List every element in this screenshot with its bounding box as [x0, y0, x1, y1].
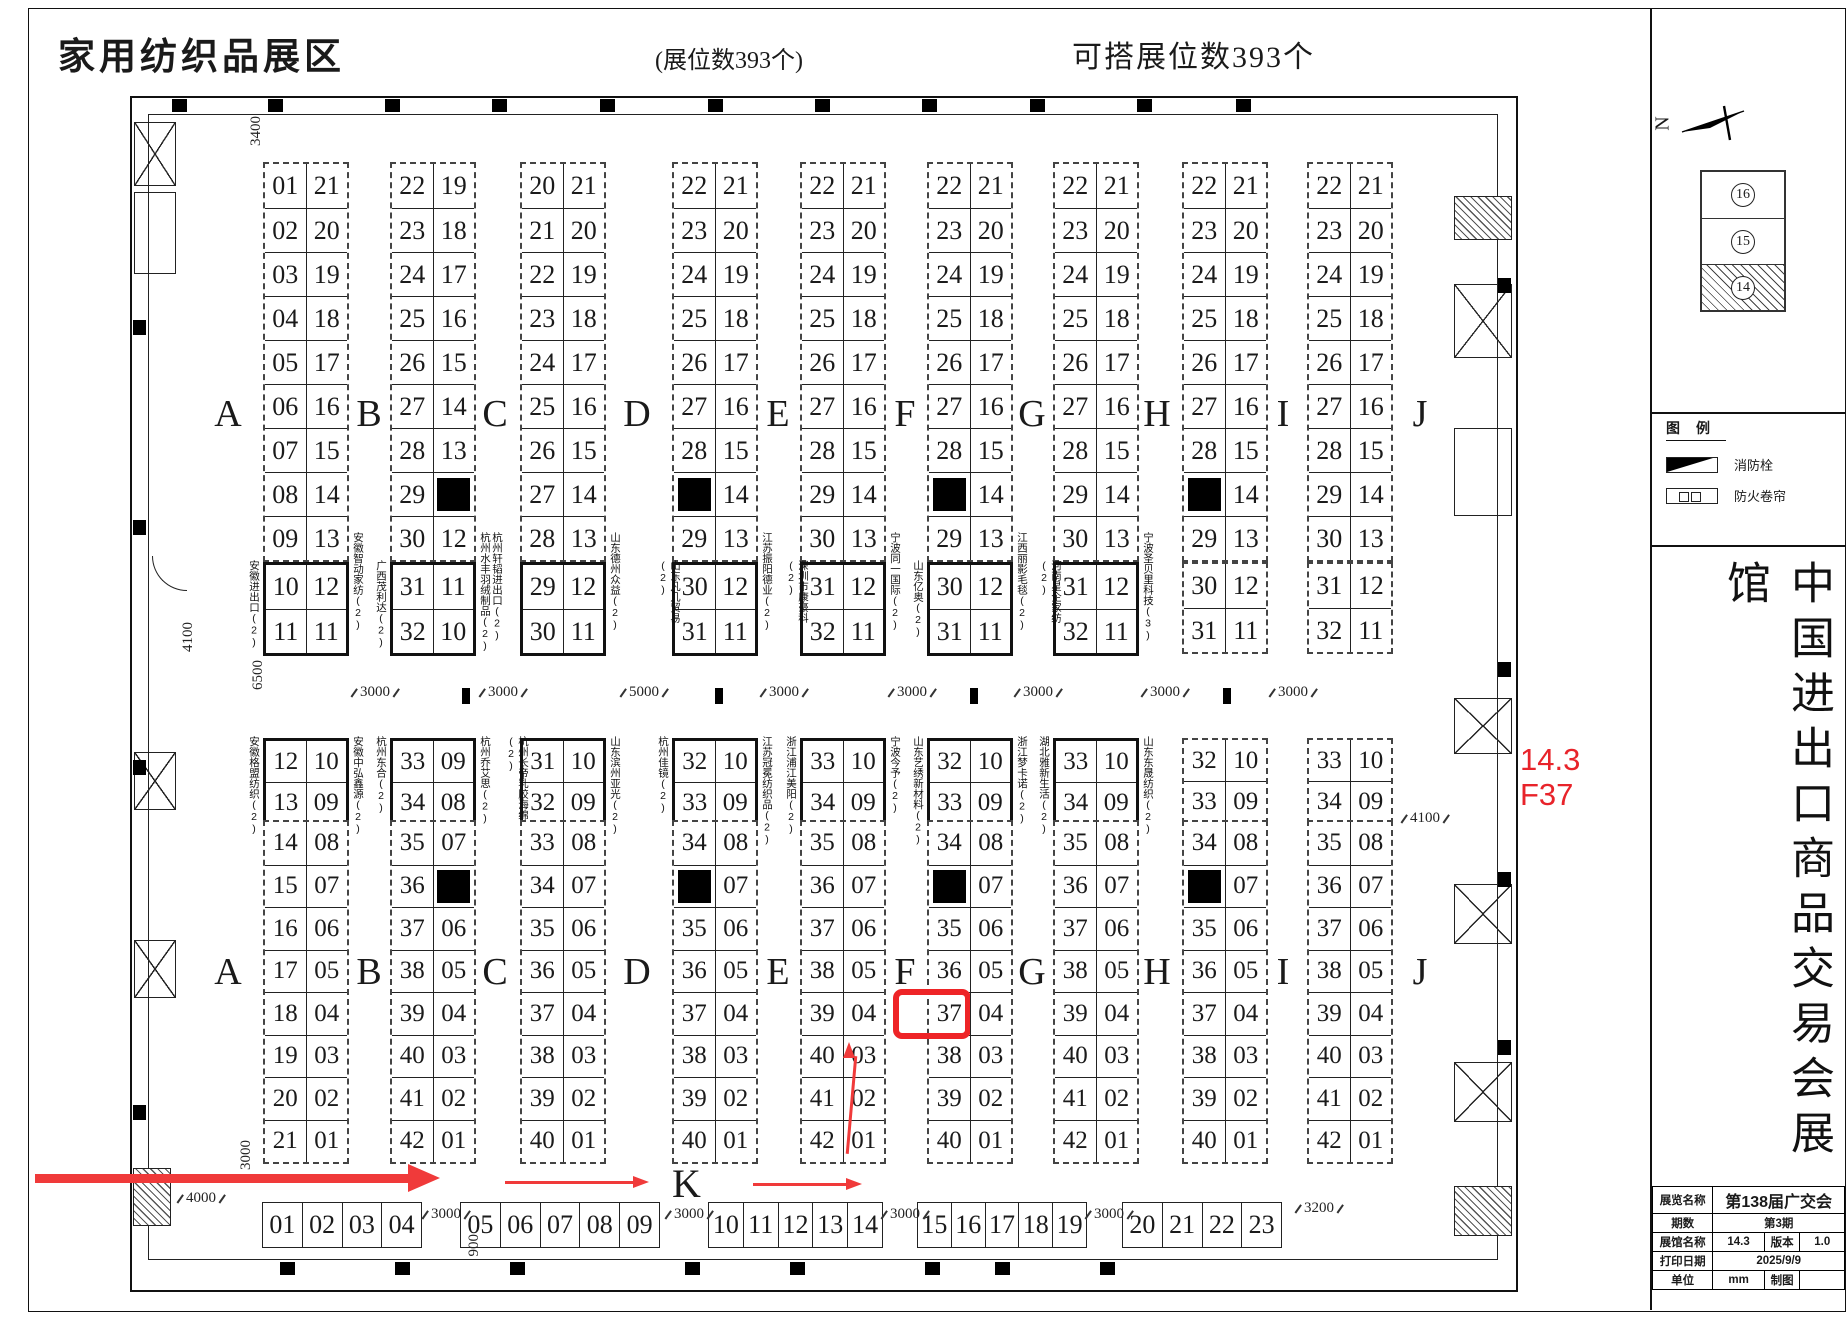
booth-number: 20: [529, 171, 555, 201]
booth-cell: 17: [1096, 341, 1138, 384]
booth-number: 04: [272, 304, 298, 334]
booth-block-bottom: 340807350636053704380339024001: [927, 820, 1013, 1164]
booth-cell: 13: [843, 517, 885, 560]
booth-cell: 39: [674, 1078, 715, 1120]
booth-number: 33: [682, 789, 707, 817]
booth-number: 28: [936, 436, 962, 466]
booth-cell: 37: [392, 908, 433, 950]
booth-number: 38: [530, 1042, 555, 1070]
booth-number: 04: [571, 1000, 596, 1028]
booth-cell: 18: [306, 297, 348, 340]
booth-cell: 22: [1202, 1203, 1242, 1247]
booth-cell: 36: [929, 951, 970, 993]
company-label: 山东东晟纺织(2): [1142, 736, 1154, 846]
booth-cell: 02: [1225, 1078, 1267, 1120]
booth-number: 40: [530, 1127, 555, 1155]
aisle-letter-top-E: E: [756, 392, 800, 436]
dimension-label: 3000: [1266, 684, 1320, 701]
booth-cell: 23: [1241, 1203, 1281, 1247]
booth-number: 22: [1316, 171, 1342, 201]
booth-cell: 07: [715, 866, 757, 908]
booth-cell: 36: [802, 866, 843, 908]
booth-number: 27: [399, 392, 425, 422]
pillar-icon: [678, 870, 711, 903]
booth-number: 08: [978, 829, 1003, 857]
booth-cell: 27: [392, 385, 433, 428]
booth-number: 10: [723, 748, 748, 776]
booth-number: 01: [314, 1127, 339, 1155]
info-value: mm: [1712, 1271, 1763, 1289]
aisle-letter-top-H: H: [1135, 392, 1179, 436]
booth-cell: 33: [1184, 782, 1225, 822]
dimension-label: 4100: [1398, 810, 1452, 827]
booth-row: 3211: [1309, 608, 1391, 652]
booth-number: 09: [1233, 788, 1258, 816]
booth-number: 36: [530, 957, 555, 985]
stairs-icon: [134, 122, 176, 186]
booth-number: 11: [723, 617, 748, 647]
booth-row: 2518: [674, 296, 756, 340]
booth-row: 2320: [929, 208, 1011, 252]
booth-cell: 30: [523, 610, 563, 653]
booth-number: 10: [978, 748, 1003, 776]
booth-row: 3309: [675, 782, 755, 823]
booth-cell: 26: [802, 341, 843, 384]
booth-row: 3308: [522, 822, 604, 865]
booth-number: 32: [810, 617, 836, 647]
booth-cell: 33: [1056, 741, 1096, 782]
booth-row: 1408: [265, 822, 347, 865]
booth-row: 2714: [522, 472, 604, 516]
pillar-icon: [678, 478, 711, 511]
highlighted-booth-f37: 37: [929, 993, 970, 1035]
booth-number: 38: [1063, 957, 1088, 985]
booth-number: 17: [571, 348, 597, 378]
booth-number: 06: [978, 915, 1003, 943]
booth-cell: 19: [563, 253, 605, 296]
booth-cell: 36: [522, 951, 563, 993]
booth-row: 3904: [1309, 992, 1391, 1035]
booth-row: 3607: [1055, 865, 1137, 908]
booth-number: 28: [1191, 436, 1217, 466]
booth-number: 20: [723, 216, 749, 246]
elevator-icon: [1454, 698, 1512, 754]
booth-number: 04: [1358, 1000, 1383, 1028]
booth-number: 15: [1233, 436, 1259, 466]
booth-number: 06: [1104, 915, 1129, 943]
booth-number: 26: [809, 348, 835, 378]
aisle-letter-bottom-A: A: [206, 950, 250, 994]
booth-row: 2219: [392, 164, 474, 208]
booth-cell: 11: [563, 610, 604, 653]
booth-cell: 12: [266, 741, 306, 782]
fire-hydrant-icon: [1100, 1262, 1115, 1275]
booth-row: 2221: [929, 164, 1011, 208]
booth-cell: 25: [802, 297, 843, 340]
booth-cell: 09: [1096, 783, 1137, 823]
booth-row: 2813: [392, 428, 474, 472]
booth-cell: 10: [1225, 740, 1267, 781]
booth-row: 2221: [1184, 164, 1266, 208]
booth-cell: 42: [1309, 1121, 1350, 1163]
booth-number: 19: [571, 260, 597, 290]
booth-number: 37: [810, 915, 835, 943]
booth-block-bottom-box: 33093408: [390, 738, 476, 826]
booth-cell: 17: [843, 341, 885, 384]
dimension-label: 3400: [248, 116, 265, 146]
booth-cell: 20: [1350, 209, 1392, 252]
booth-cell: 15: [1350, 429, 1392, 472]
booth-row: 0319: [265, 252, 347, 296]
booth-number: 41: [1317, 1085, 1342, 1113]
booth-number: 17: [989, 1210, 1015, 1240]
booth-number: 37: [1317, 915, 1342, 943]
company-label: 杭州东合(2): [375, 736, 387, 846]
booth-cell: 06: [1096, 908, 1138, 950]
booth-cell: 37: [1309, 908, 1350, 950]
booth-number: 09: [1104, 789, 1129, 817]
booth-number: 31: [937, 617, 963, 647]
booth-number: 23: [681, 216, 707, 246]
service-room: [134, 192, 176, 274]
booth-cell: 10: [970, 741, 1011, 782]
booth-row: 3805: [802, 950, 884, 993]
booth-number: 27: [1316, 392, 1342, 422]
company-label: 宁波同一国际(2): [889, 532, 901, 652]
booth-number: 21: [1233, 171, 1259, 201]
booth-cell: 18: [970, 297, 1012, 340]
booth-cell: 28: [392, 429, 433, 472]
booth-number: 41: [400, 1085, 425, 1113]
booth-number: 18: [1023, 1210, 1049, 1240]
booth-number: 21: [1169, 1210, 1195, 1240]
booth-number: 33: [530, 829, 555, 857]
booth-cell: 12: [970, 565, 1011, 609]
booth-row: 2419: [929, 252, 1011, 296]
booth-number: 27: [936, 392, 962, 422]
booth-row: 07: [929, 865, 1011, 908]
info-value: [1799, 1271, 1844, 1289]
booth-highlight-rect: [893, 989, 971, 1039]
booth-cell: 25: [1055, 297, 1096, 340]
booth-cell: 14: [265, 822, 306, 865]
booth-cell: 24: [522, 341, 563, 384]
booth-cell: 33: [675, 783, 715, 823]
booth-row: 3111: [1184, 608, 1266, 652]
booth-number: 05: [1104, 957, 1129, 985]
aisle-letter-bottom-J: J: [1398, 950, 1442, 994]
booth-cell: 21: [1225, 164, 1267, 208]
booth-row: 3211: [803, 609, 883, 653]
booth-number: 05: [441, 957, 466, 985]
booth-cell: 30: [802, 517, 843, 560]
booth-number: 12: [313, 572, 339, 602]
fire-hydrant-icon: [280, 1262, 295, 1275]
dimension-label: 6500: [250, 660, 267, 690]
company-label: 安徽中弘鑫源(2): [352, 736, 364, 846]
booth-number: 14: [314, 480, 340, 510]
booth-number: 24: [936, 260, 962, 290]
booth-cell: 09: [563, 783, 604, 823]
booth-cell: 10: [266, 565, 306, 609]
booth-number: 19: [273, 1042, 298, 1070]
booth-cell: 40: [1184, 1121, 1225, 1163]
booth-cell: 09: [265, 517, 306, 560]
booth-number: 20: [571, 216, 597, 246]
booth-number: 32: [1316, 616, 1342, 646]
booth-cell: 32: [393, 610, 433, 653]
booth-cell: 18: [1018, 1203, 1052, 1247]
booth-cell: 07: [306, 866, 348, 908]
booth-cell: 15: [433, 341, 475, 384]
booth-number: 01: [978, 1127, 1003, 1155]
booth-number: 35: [400, 829, 425, 857]
booth-row: 4003: [1055, 1035, 1137, 1078]
booth-cell: 01: [715, 1121, 757, 1163]
booth-number: 28: [681, 436, 707, 466]
booth-number: 10: [851, 748, 876, 776]
booth-cell: 07: [1225, 866, 1267, 908]
booth-cell: 01: [306, 1121, 348, 1163]
aisle-letter-bottom-B: B: [347, 950, 391, 994]
booth-number: 38: [810, 957, 835, 985]
info-value: 14.3: [1712, 1233, 1763, 1251]
booth-cell: 16: [265, 908, 306, 950]
booth-row: 2219: [522, 252, 604, 296]
booth-number: 14: [852, 1210, 878, 1240]
booth-row: 2617: [674, 340, 756, 384]
booth-cell: 41: [1309, 1078, 1350, 1120]
booth-cell: 35: [522, 908, 563, 950]
booth-cell: 18: [1350, 297, 1392, 340]
booth-number: 02: [1358, 1085, 1383, 1113]
booth-cell: 17: [265, 951, 306, 993]
booth-cell: 20: [843, 209, 885, 252]
booth-number: 06: [851, 915, 876, 943]
booth-cell: 39: [522, 1078, 563, 1120]
booth-cell: 13: [306, 517, 348, 560]
company-label: 江苏振阳德业(2): [761, 532, 773, 652]
booth-cell: 14: [433, 385, 475, 428]
booth-number: 03: [978, 1042, 1003, 1070]
booth-block-bottom-box: 33103409: [800, 738, 886, 826]
booth-number: 01: [851, 1127, 876, 1155]
booth-row: 3210: [675, 741, 755, 782]
booth-number: 17: [1104, 348, 1130, 378]
booth-cell: 40: [1055, 1036, 1096, 1078]
booth-row: 3111: [675, 609, 755, 653]
aisle-letter-bottom-D: D: [615, 950, 659, 994]
booth-number: 17: [441, 260, 467, 290]
booth-number: 13: [571, 524, 597, 554]
booth-cell: 29: [1309, 473, 1350, 516]
booth-row: 3409: [803, 782, 883, 823]
booth-number: 18: [723, 304, 749, 334]
booth-row: 2518: [802, 296, 884, 340]
dimension-label: 3000: [419, 1206, 473, 1223]
booth-number: 20: [314, 216, 340, 246]
booth-block-top: 222123202419251826172716281529143013: [800, 162, 886, 562]
booth-number: 14: [1233, 480, 1259, 510]
booth-row: 2813: [522, 516, 604, 560]
booth-row: 4001: [1184, 1120, 1266, 1163]
booth-cell: 03: [563, 1036, 605, 1078]
booth-row: 0616: [265, 384, 347, 428]
pillar-icon: [933, 870, 966, 903]
booth-row: 3706: [802, 907, 884, 950]
booth-row: 2716: [1055, 384, 1137, 428]
booth-row: 3803: [1184, 1035, 1266, 1078]
booth-cell: 08: [563, 822, 605, 865]
booth-row: 3011: [523, 609, 603, 653]
dimension-label: 4100: [180, 622, 197, 652]
booth-number: 08: [723, 829, 748, 857]
booth-row: 3110: [523, 741, 603, 782]
booth-row: 2914: [802, 472, 884, 516]
booth-row: 3211: [1056, 609, 1136, 653]
booth-cell: 23: [929, 209, 970, 252]
info-label: 期数: [1653, 1214, 1712, 1232]
booth-number: 34: [937, 829, 962, 857]
dimension-label: 5000: [617, 684, 671, 701]
booth-number: 31: [682, 617, 708, 647]
booth-block-bottom-box: 32103309: [1182, 738, 1268, 824]
booth-cell: 19: [1096, 253, 1138, 296]
booth-row: 3605: [522, 950, 604, 993]
booth-row: 3210: [393, 609, 473, 653]
panel-divider: [1650, 8, 1652, 1310]
booth-number: 16: [978, 392, 1004, 422]
booth-number: 25: [681, 304, 707, 334]
booth-cell: 03: [1225, 1036, 1267, 1078]
company-label: 山东亿奥(2): [912, 560, 924, 652]
booth-number: 25: [936, 304, 962, 334]
booth-cell: 39: [392, 993, 433, 1035]
fire-hydrant-icon: [133, 760, 146, 775]
booth-number: 12: [782, 1210, 808, 1240]
stairs-icon: [1454, 284, 1512, 358]
drawing-info-table: 展览名称第138届广交会期数第3期展馆名称14.3版本1.0打印日期2025/9…: [1652, 1186, 1845, 1290]
booth-row: 2716: [674, 384, 756, 428]
booth-cell: 40: [674, 1121, 715, 1163]
booth-number: 16: [314, 392, 340, 422]
booth-cell: 20: [306, 209, 348, 252]
booth-cell: 38: [674, 1036, 715, 1078]
booth-row: 0121: [265, 164, 347, 208]
booth-number: 26: [1191, 348, 1217, 378]
booth-row: 3902: [674, 1077, 756, 1120]
booth-number: 05: [851, 957, 876, 985]
booth-number: 40: [1317, 1042, 1342, 1070]
booth-row: 3112: [1056, 565, 1136, 609]
fire-hydrant-icon: [395, 1262, 410, 1275]
booth-cell: 19: [306, 253, 348, 296]
booth-number: 31: [400, 572, 426, 602]
booth-cell: 04: [433, 993, 475, 1035]
booth-row: 4201: [802, 1120, 884, 1163]
booth-number: 12: [977, 572, 1003, 602]
booth-cell: 29: [1184, 517, 1225, 560]
company-label: 宁波今予(2): [889, 736, 901, 846]
booth-cell: 18: [1225, 297, 1267, 340]
booth-row: 3111: [930, 609, 1010, 653]
booth-cell: 26: [1184, 341, 1225, 384]
booth-cell: 37: [1055, 908, 1096, 950]
booth-number: 27: [809, 392, 835, 422]
booth-cell: 05: [265, 341, 306, 384]
k-booth-group: 20212223: [1122, 1202, 1282, 1248]
booth-row: 2914: [1309, 472, 1391, 516]
fire-hydrant-icon: [1498, 278, 1511, 293]
booth-number: 39: [1192, 1085, 1217, 1113]
booth-row: 1111: [266, 609, 346, 653]
booth-row: 0418: [265, 296, 347, 340]
booth-cell: 35: [1309, 822, 1350, 865]
booth-cell: 31: [393, 565, 433, 609]
fire-hydrant-icon: [268, 99, 283, 112]
booth-row: 3706: [1055, 907, 1137, 950]
booth-number: 17: [273, 957, 298, 985]
booth-block-bottom-box: 32103309: [927, 738, 1013, 826]
info-value: 第3期: [1712, 1214, 1844, 1232]
booth-row: 3803: [929, 1035, 1011, 1078]
booth-row: 3904: [802, 992, 884, 1035]
booth-cell: 41: [1055, 1078, 1096, 1120]
booth-number: 09: [571, 789, 596, 817]
booth-cell: 27: [522, 473, 563, 516]
booth-row: 2516: [392, 296, 474, 340]
booth-cell: 19: [1225, 253, 1267, 296]
booth-block-top-box: 30123111: [672, 562, 758, 656]
booth-cell: 23: [392, 209, 433, 252]
booth-cell: 06: [843, 908, 885, 950]
booth-block-top-box: 30123111: [1182, 562, 1268, 654]
booth-row: 4201: [1309, 1120, 1391, 1163]
booth-block-top-box: 30123111: [927, 562, 1013, 656]
booth-number: 10: [314, 748, 339, 776]
booth-cell: 11: [1350, 609, 1392, 652]
booth-block-bottom-box: 12101309: [263, 738, 349, 826]
booth-row: 3012: [930, 565, 1010, 609]
booth-cell: 07: [1096, 866, 1138, 908]
booth-number: 17: [978, 348, 1004, 378]
booth-cell: 22: [674, 164, 715, 208]
booth-number: 32: [400, 617, 426, 647]
booth-number: 11: [748, 1210, 773, 1240]
booth-cell: 08: [715, 822, 757, 865]
booth-number: 29: [936, 524, 962, 554]
booth-number: 03: [1104, 1042, 1129, 1070]
booth-row: 3506: [1184, 907, 1266, 950]
booth-cell: 02: [563, 1078, 605, 1120]
booth-number: 05: [1358, 957, 1383, 985]
booth-number: 33: [1063, 748, 1088, 776]
booth-row: 4102: [802, 1077, 884, 1120]
booth-number: 23: [399, 216, 425, 246]
booth-row: 2320: [1309, 208, 1391, 252]
booth-number: 17: [1358, 348, 1384, 378]
booth-number: 29: [1191, 524, 1217, 554]
booth-cell: 28: [674, 429, 715, 472]
booth-row: 3309: [930, 782, 1010, 823]
booth-cell: 26: [392, 341, 433, 384]
booth-number: 28: [529, 524, 555, 554]
booth-row: 3803: [674, 1035, 756, 1078]
booth-number: 05: [314, 957, 339, 985]
booth-row: 3013: [1309, 516, 1391, 560]
booth-cell: 24: [674, 253, 715, 296]
booth-row: 2320: [802, 208, 884, 252]
